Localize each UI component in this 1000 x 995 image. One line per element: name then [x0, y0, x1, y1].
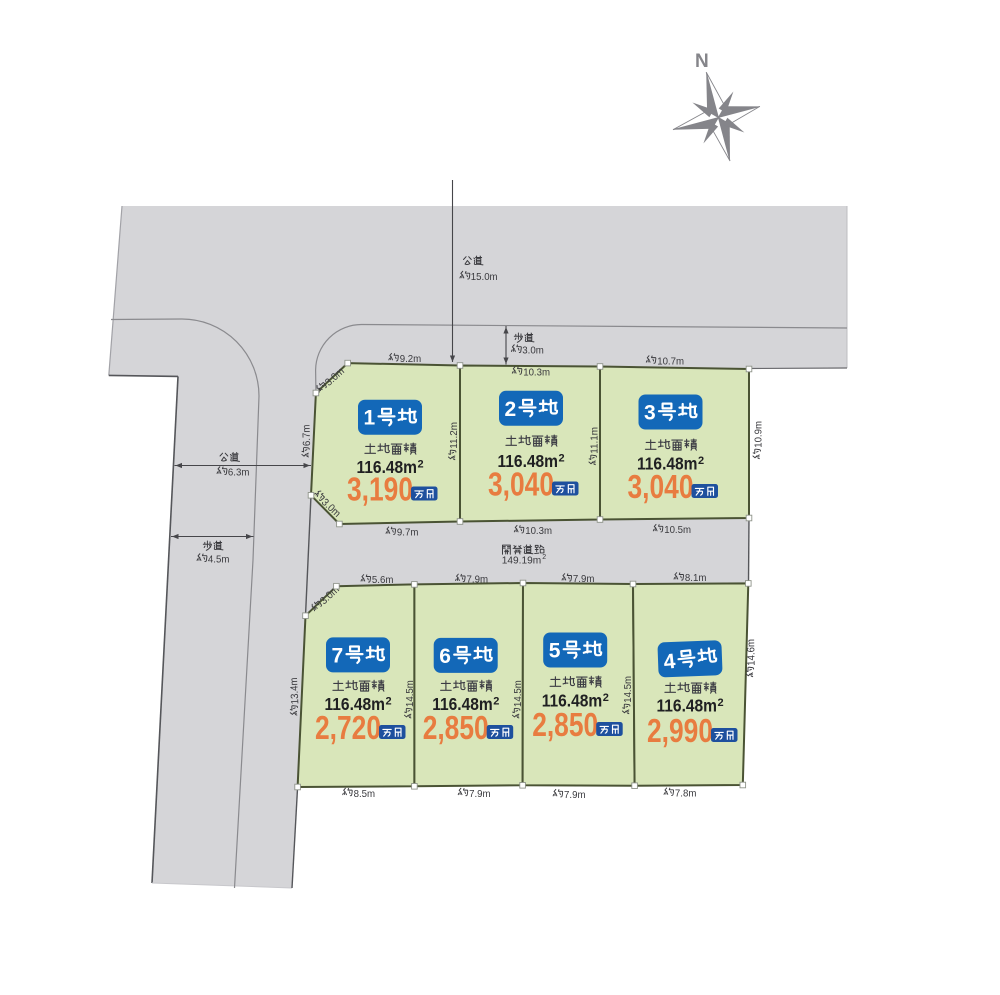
svg-text:2: 2: [603, 692, 609, 704]
svg-text:14.5m: 14.5m: [512, 680, 524, 707]
svg-text:11.1m: 11.1m: [589, 427, 601, 454]
svg-text:7.9m: 7.9m: [467, 574, 489, 586]
svg-text:2: 2: [493, 696, 499, 708]
svg-text:8.5m: 8.5m: [354, 788, 376, 800]
svg-text:3.0m: 3.0m: [522, 345, 544, 357]
svg-text:3,040: 3,040: [628, 468, 694, 505]
svg-text:2,850: 2,850: [423, 709, 489, 746]
svg-text:10.5m: 10.5m: [664, 524, 691, 536]
svg-text:15.0m: 15.0m: [471, 271, 498, 283]
svg-text:5: 5: [549, 640, 561, 663]
svg-text:7: 7: [332, 644, 344, 667]
svg-text:10.3m: 10.3m: [525, 525, 552, 537]
svg-text:2: 2: [542, 554, 546, 561]
svg-text:3,040: 3,040: [488, 465, 554, 502]
svg-text:2: 2: [505, 398, 517, 421]
svg-text:149.19m: 149.19m: [502, 555, 542, 567]
svg-text:N: N: [695, 51, 709, 72]
svg-text:2,720: 2,720: [315, 709, 381, 746]
svg-text:4.5m: 4.5m: [208, 554, 230, 566]
svg-text:2: 2: [386, 696, 392, 708]
svg-text:2,990: 2,990: [647, 712, 713, 749]
svg-text:2,850: 2,850: [532, 706, 598, 743]
svg-text:2: 2: [559, 453, 565, 465]
svg-text:9.2m: 9.2m: [400, 353, 422, 365]
svg-text:8.1m: 8.1m: [685, 572, 707, 584]
svg-text:7.9m: 7.9m: [573, 573, 595, 585]
svg-text:14.5m: 14.5m: [404, 680, 416, 707]
svg-text:1: 1: [364, 407, 376, 430]
svg-text:2: 2: [418, 459, 424, 471]
svg-text:6: 6: [439, 645, 451, 668]
svg-text:10.9m: 10.9m: [753, 421, 765, 448]
svg-text:6.3m: 6.3m: [228, 467, 250, 479]
svg-text:3: 3: [644, 402, 656, 425]
svg-text:5.6m: 5.6m: [372, 574, 394, 586]
svg-text:11.2m: 11.2m: [448, 422, 460, 449]
svg-text:2: 2: [698, 455, 704, 467]
svg-text:7.9m: 7.9m: [469, 788, 491, 800]
svg-text:14.5m: 14.5m: [622, 676, 634, 703]
svg-text:2: 2: [718, 697, 724, 709]
svg-text:13.4m: 13.4m: [288, 677, 301, 705]
svg-text:6.7m: 6.7m: [300, 424, 313, 446]
svg-text:10.3m: 10.3m: [523, 366, 550, 378]
svg-text:10.7m: 10.7m: [657, 355, 684, 367]
svg-text:9.7m: 9.7m: [397, 527, 419, 539]
svg-text:7.9m: 7.9m: [564, 789, 586, 801]
svg-text:14.6m: 14.6m: [745, 639, 757, 666]
svg-text:7.8m: 7.8m: [675, 788, 697, 800]
svg-text:3,190: 3,190: [347, 470, 413, 507]
